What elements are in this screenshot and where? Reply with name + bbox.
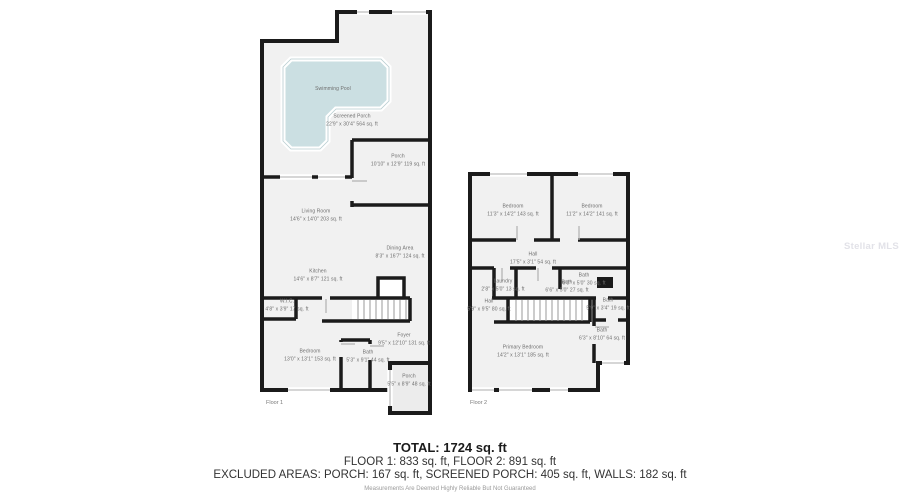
room-name: Hall bbox=[467, 298, 510, 306]
room-dims: 6'6" x 5'0" 27 sq. ft bbox=[545, 287, 588, 295]
room-label-swimming-pool: Swimming Pool bbox=[315, 86, 351, 94]
room-label-bedroom-right: Bedroom 11'2" x 14'2" 141 sq. ft bbox=[566, 203, 617, 219]
room-name: Porch bbox=[371, 153, 425, 161]
area-summary: TOTAL: 1724 sq. ft FLOOR 1: 833 sq. ft, … bbox=[0, 440, 900, 492]
floor-areas: FLOOR 1: 833 sq. ft, FLOOR 2: 891 sq. ft bbox=[0, 456, 900, 468]
room-name: Primary Bedroom bbox=[497, 344, 549, 352]
room-label-bedroom-left: Bedroom 11'3" x 14'2" 143 sq. ft bbox=[487, 203, 538, 219]
room-dims: 14'6" x 14'0" 203 sq. ft bbox=[290, 216, 342, 224]
room-dims: 11'3" x 14'2" 143 sq. ft bbox=[487, 211, 538, 219]
room-dims: 22'9" x 30'4" 564 sq. ft bbox=[326, 121, 378, 129]
room-dims: 2'8" x 5'0" 13 sq. ft bbox=[481, 286, 524, 294]
room-label-wic: W.I.C. 4'8" x 3'9" 17 sq. ft bbox=[265, 298, 308, 314]
room-label-foyer: Foyer 9'5" x 12'10" 131 sq. ft bbox=[378, 332, 430, 348]
room-dims: 5'3" x 9'1" 44 sq. ft bbox=[346, 357, 389, 365]
floor1-stairs-fill bbox=[352, 300, 410, 320]
room-name: Hall bbox=[510, 251, 556, 259]
room-name: Bath bbox=[586, 297, 629, 305]
room-name: Laundry bbox=[481, 278, 524, 286]
room-label-hall-lower: Hall 5'9" x 9'5" 80 sq. ft bbox=[467, 298, 510, 314]
room-label-bath-large: Bath 6'3" x 8'10" 64 sq. ft bbox=[579, 327, 625, 343]
room-label-bath-small: Bath 5'9" x 3'4" 19 sq. ft bbox=[586, 297, 629, 313]
room-dims: 4'8" x 3'9" 17 sq. ft bbox=[265, 306, 308, 314]
room-name: Bath bbox=[346, 349, 389, 357]
room-name: Bath bbox=[579, 327, 625, 335]
room-label-dining-area: Dining Area 8'3" x 16'7" 124 sq. ft bbox=[376, 245, 425, 261]
room-name: Living Room bbox=[290, 208, 342, 216]
room-dims: 9'5" x 12'10" 131 sq. ft bbox=[378, 340, 430, 348]
room-name: W.I.C. bbox=[265, 298, 308, 306]
room-label-porch-top: Porch 10'10" x 12'9" 119 sq. ft bbox=[371, 153, 425, 169]
room-label-kitchen: Kitchen 14'6" x 8'7" 121 sq. ft bbox=[294, 268, 343, 284]
total-area: TOTAL: 1724 sq. ft bbox=[0, 440, 900, 455]
room-label-bedroom-f1: Bedroom 13'0" x 13'1" 153 sq. ft bbox=[284, 348, 336, 364]
room-dims: 6'3" x 8'10" 64 sq. ft bbox=[579, 335, 625, 343]
room-dims: 5'5" x 8'9" 48 sq. ft bbox=[387, 381, 430, 389]
disclaimer: Measurements Are Deemed Highly Reliable … bbox=[0, 486, 900, 492]
room-name: Dining Area bbox=[376, 245, 425, 253]
room-dims: 8'3" x 16'7" 124 sq. ft bbox=[376, 253, 425, 261]
room-name: Bedroom bbox=[487, 203, 538, 211]
room-dims: 11'2" x 14'2" 141 sq. ft bbox=[566, 211, 617, 219]
room-label-primary-bedroom: Primary Bedroom 14'2" x 13'1" 185 sq. ft bbox=[497, 344, 549, 360]
room-name: Kitchen bbox=[294, 268, 343, 276]
room-dims: 13'0" x 13'1" 153 sq. ft bbox=[284, 356, 336, 364]
room-label-laundry: Laundry 2'8" x 5'0" 13 sq. ft bbox=[481, 278, 524, 294]
room-name: Bedroom bbox=[566, 203, 617, 211]
room-name: Porch bbox=[387, 373, 430, 381]
room-dims: 10'10" x 12'9" 119 sq. ft bbox=[371, 161, 425, 169]
floorplan-svg bbox=[0, 0, 900, 500]
room-label-hall-upper: Hall 17'5" x 3'1" 54 sq. ft bbox=[510, 251, 556, 267]
room-dims: 5'9" x 3'4" 19 sq. ft bbox=[586, 305, 629, 313]
room-name: Screened Porch bbox=[326, 113, 378, 121]
floor2-tag: Floor 2 bbox=[470, 400, 487, 406]
room-name: Foyer bbox=[378, 332, 430, 340]
room-label-screened-porch: Screened Porch 22'9" x 30'4" 564 sq. ft bbox=[326, 113, 378, 129]
room-name: Swimming Pool bbox=[315, 86, 351, 94]
excluded-areas: EXCLUDED AREAS: PORCH: 167 sq. ft, SCREE… bbox=[0, 469, 900, 481]
mls-watermark: Stellar MLS bbox=[844, 241, 899, 252]
room-label-bath-b: Bath 6'6" x 5'0" 27 sq. ft bbox=[545, 279, 588, 295]
room-label-porch-bottom: Porch 5'5" x 8'9" 48 sq. ft bbox=[387, 373, 430, 389]
room-name: Bedroom bbox=[284, 348, 336, 356]
room-dims: 17'5" x 3'1" 54 sq. ft bbox=[510, 259, 556, 267]
room-dims: 5'9" x 9'5" 80 sq. ft bbox=[467, 306, 510, 314]
floor1-tag: Floor 1 bbox=[266, 400, 283, 406]
floorplan-page: Swimming Pool Screened Porch 22'9" x 30'… bbox=[0, 0, 900, 500]
room-label-living-room: Living Room 14'6" x 14'0" 203 sq. ft bbox=[290, 208, 342, 224]
floor1-closet-fill bbox=[379, 279, 403, 298]
room-dims: 14'2" x 13'1" 185 sq. ft bbox=[497, 352, 549, 360]
room-name: Bath bbox=[545, 279, 588, 287]
room-label-bath-f1: Bath 5'3" x 9'1" 44 sq. ft bbox=[346, 349, 389, 365]
room-dims: 14'6" x 8'7" 121 sq. ft bbox=[294, 276, 343, 284]
